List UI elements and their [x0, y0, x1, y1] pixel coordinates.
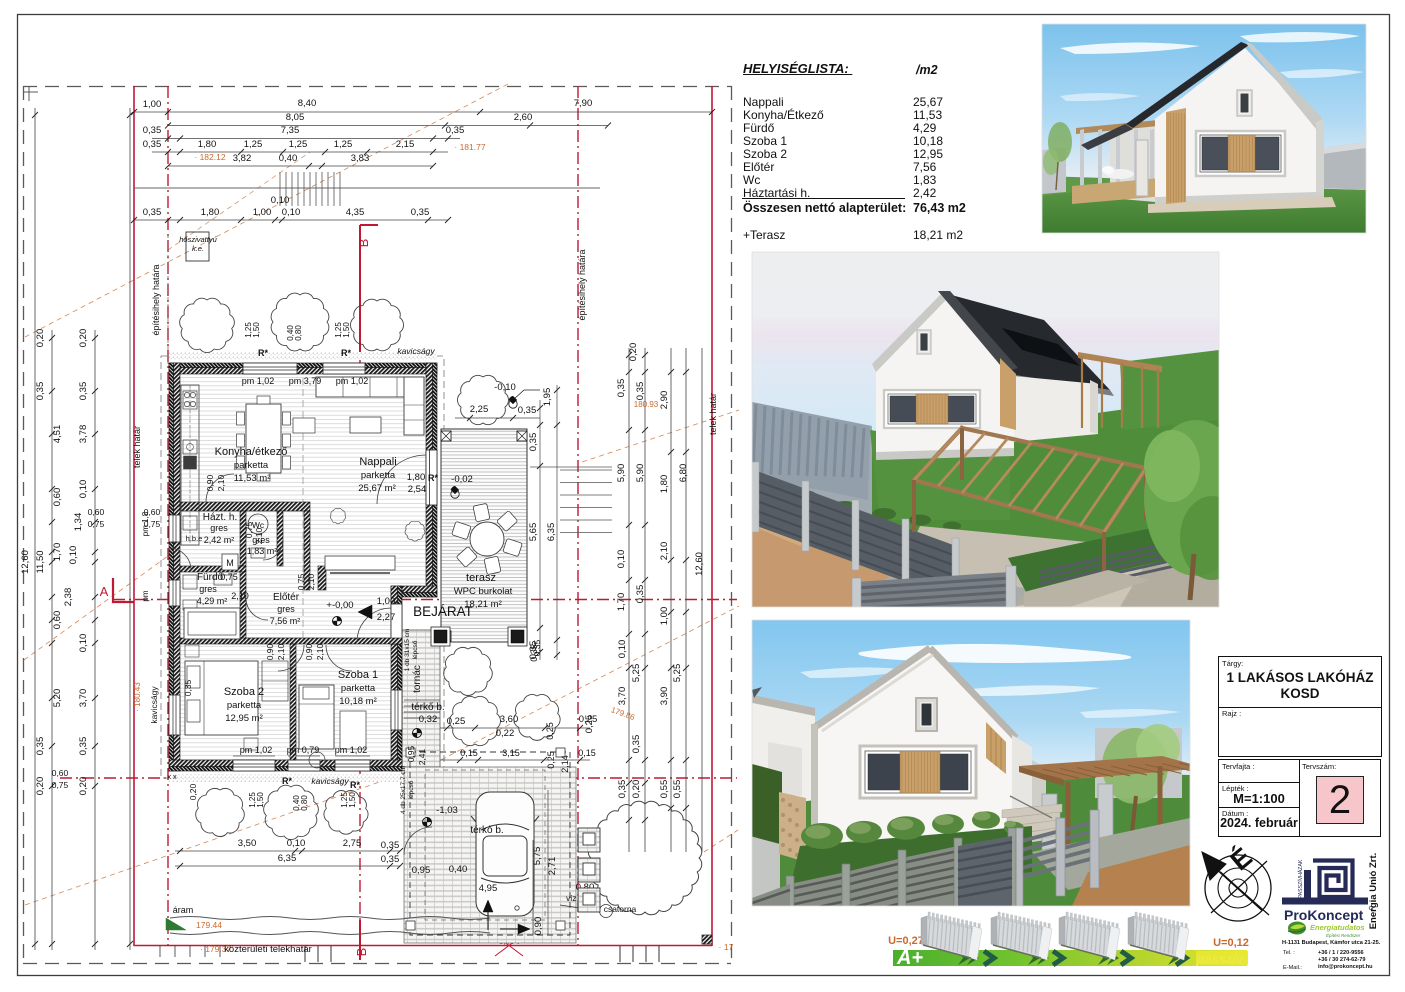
svg-text:0,35: 0,35: [381, 854, 400, 865]
svg-text:3,78: 3,78: [78, 425, 89, 444]
svg-text:2,42 m²: 2,42 m²: [204, 535, 235, 545]
svg-text:x x: x x: [167, 772, 177, 781]
svg-text:1,25: 1,25: [244, 139, 263, 150]
svg-text:1,00: 1,00: [659, 607, 670, 626]
svg-text:1,83 m²: 1,83 m²: [247, 546, 278, 556]
svg-text:11,50: 11,50: [35, 550, 46, 573]
svg-text:5,65: 5,65: [528, 523, 539, 542]
svg-text:B: B: [354, 948, 369, 957]
svg-text:2,10: 2,10: [659, 542, 670, 561]
svg-text:parketta: parketta: [227, 700, 262, 711]
svg-text:2,10: 2,10: [216, 474, 226, 491]
svg-text:pm 1,02: pm 1,02: [336, 376, 369, 386]
svg-text:12,60: 12,60: [20, 550, 31, 574]
svg-text:2,14: 2,14: [560, 755, 570, 773]
svg-text:0,75: 0,75: [52, 780, 69, 790]
svg-text:3,90: 3,90: [659, 687, 670, 706]
svg-text:1,80: 1,80: [201, 207, 220, 218]
svg-text:1,95: 1,95: [542, 388, 553, 407]
svg-text:pm 0,79: pm 0,79: [287, 745, 320, 755]
svg-text:2,41: 2,41: [417, 748, 427, 765]
svg-text:3,60: 3,60: [500, 714, 519, 725]
svg-text:0,35: 0,35: [183, 679, 193, 696]
svg-text:8,40: 8,40: [298, 98, 317, 109]
svg-text:0,35: 0,35: [143, 125, 162, 136]
svg-text:180.93: 180.93: [634, 400, 659, 409]
svg-text:1,80: 1,80: [659, 475, 670, 494]
svg-text:telek határ: telek határ: [132, 426, 142, 468]
svg-text:1,80: 1,80: [198, 139, 217, 150]
svg-text:0,90: 0,90: [265, 643, 275, 660]
svg-text:1,25: 1,25: [334, 139, 353, 150]
svg-text:1,70: 1,70: [52, 543, 63, 562]
svg-text:0,25: 0,25: [579, 714, 598, 725]
svg-text:0,55: 0,55: [659, 780, 670, 799]
svg-text:0,15: 0,15: [578, 748, 596, 758]
svg-text:4,95: 4,95: [479, 883, 498, 894]
svg-text:0,25: 0,25: [545, 722, 555, 740]
svg-text:pm 1,02: pm 1,02: [335, 745, 368, 755]
svg-text:R*: R*: [350, 780, 360, 790]
svg-text:0,80: 0,80: [300, 795, 309, 811]
svg-text:18,21 m²: 18,21 m²: [464, 599, 502, 610]
svg-text:Szoba 2: Szoba 2: [224, 686, 264, 698]
svg-text:terasz: terasz: [466, 572, 496, 584]
svg-text:0,20: 0,20: [35, 777, 46, 796]
svg-text:0,90: 0,90: [205, 474, 215, 491]
svg-text:2,10: 2,10: [254, 527, 264, 544]
svg-text:0,35: 0,35: [635, 382, 646, 401]
svg-text:0,35: 0,35: [532, 639, 542, 656]
svg-text:+-0,00: +-0,00: [326, 600, 353, 611]
svg-text:2,27: 2,27: [377, 612, 396, 623]
svg-text:0,80: 0,80: [294, 325, 303, 341]
svg-text:0,20: 0,20: [628, 343, 639, 362]
svg-text:4,51: 4,51: [52, 425, 63, 444]
svg-text:2,38: 2,38: [63, 588, 74, 607]
svg-text:0,20: 0,20: [188, 783, 198, 800]
svg-text:1,50: 1,50: [342, 322, 351, 338]
svg-text:A+: A+: [896, 947, 923, 969]
svg-text:csatorna: csatorna: [604, 904, 637, 914]
svg-text:5,25: 5,25: [631, 664, 642, 683]
svg-text:· 17: · 17: [719, 942, 734, 952]
svg-text:1,25: 1,25: [289, 139, 308, 150]
svg-text:7,35: 7,35: [281, 125, 300, 136]
svg-text:0,40: 0,40: [449, 864, 468, 875]
svg-text:0,35: 0,35: [631, 735, 642, 754]
svg-text:parketta: parketta: [361, 470, 396, 481]
svg-text:pm 1,02: pm 1,02: [240, 745, 273, 755]
svg-text:telek határ: telek határ: [708, 393, 718, 435]
svg-text:0,60: 0,60: [88, 507, 105, 517]
svg-text:kavicságy: kavicságy: [149, 686, 159, 724]
svg-text:· 182.12: · 182.12: [194, 152, 225, 162]
svg-text:gres: gres: [199, 584, 217, 594]
svg-text:2,15: 2,15: [396, 139, 415, 150]
svg-text:5,90: 5,90: [635, 464, 646, 483]
svg-text:7,90: 7,90: [574, 98, 593, 109]
svg-text:2,90: 2,90: [659, 391, 670, 410]
svg-text:Házt. h.: Házt. h.: [203, 512, 237, 523]
svg-text:Konyha/étkező: Konyha/étkező: [215, 446, 288, 458]
svg-text:11,53 m²: 11,53 m²: [234, 473, 271, 484]
svg-text:0,35: 0,35: [528, 433, 539, 452]
svg-text:0,55: 0,55: [672, 780, 683, 799]
svg-text:tornác: tornác: [412, 665, 423, 693]
svg-text:építésihely határa: építésihely határa: [577, 249, 587, 320]
svg-text:Nappali: Nappali: [359, 456, 396, 468]
svg-text:térkő b.: térkő b.: [411, 702, 444, 713]
svg-text:0,35: 0,35: [143, 207, 162, 218]
svg-text:0,10: 0,10: [287, 838, 306, 849]
svg-text:2,10: 2,10: [306, 573, 316, 590]
svg-text:0,60: 0,60: [52, 611, 63, 630]
svg-text:3,82: 3,82: [233, 153, 252, 164]
svg-text:2,54: 2,54: [408, 484, 427, 495]
svg-text:A: A: [100, 584, 109, 599]
svg-text:2,10: 2,10: [231, 591, 249, 601]
svg-text:0,35: 0,35: [617, 780, 628, 799]
svg-text:5,75: 5,75: [532, 847, 543, 866]
svg-text:Előtér: Előtér: [273, 592, 300, 603]
svg-text:1,70: 1,70: [616, 593, 627, 612]
svg-text:0,35: 0,35: [411, 207, 430, 218]
svg-text:4,35: 4,35: [346, 207, 365, 218]
svg-text:0,10: 0,10: [617, 640, 628, 659]
svg-text:k.e.: k.e.: [192, 244, 204, 253]
svg-text:2,60: 2,60: [514, 112, 533, 123]
svg-text:3,70: 3,70: [617, 687, 628, 706]
svg-text:0,35: 0,35: [518, 405, 537, 416]
svg-text:0,10: 0,10: [68, 546, 79, 565]
svg-text:12,60: 12,60: [694, 552, 705, 576]
svg-text:0,35: 0,35: [381, 840, 400, 851]
svg-text:7,56 m²: 7,56 m²: [270, 616, 301, 626]
svg-text:2,75: 2,75: [343, 838, 362, 849]
svg-text:0,35: 0,35: [616, 379, 627, 398]
svg-text:0,90: 0,90: [533, 917, 544, 936]
svg-text:3,70: 3,70: [78, 689, 89, 708]
svg-text:0,15: 0,15: [460, 748, 478, 758]
svg-text:5,25: 5,25: [672, 664, 683, 683]
svg-text:2,71: 2,71: [547, 857, 558, 876]
svg-text:áram: áram: [173, 905, 194, 915]
svg-text:2,10: 2,10: [315, 643, 325, 660]
svg-text:Energia Unió Zrt.: Energia Unió Zrt.: [1368, 853, 1379, 930]
svg-text:Építési Rendszer: Építési Rendszer: [1326, 932, 1361, 938]
svg-text:6,80: 6,80: [678, 464, 689, 483]
svg-text:0,60: 0,60: [52, 488, 63, 507]
svg-text:1,00: 1,00: [143, 99, 162, 110]
svg-text:1,80: 1,80: [407, 472, 426, 483]
svg-text:1,50: 1,50: [256, 792, 265, 808]
svg-text:0,22: 0,22: [496, 728, 515, 739]
svg-text:0,60: 0,60: [144, 507, 161, 517]
svg-text:0,75: 0,75: [244, 521, 254, 538]
svg-text:0,20: 0,20: [35, 329, 46, 348]
svg-text:R*: R*: [341, 348, 351, 358]
svg-text:R*: R*: [282, 776, 292, 786]
svg-text:B: B: [356, 239, 371, 248]
svg-text:0,20: 0,20: [78, 777, 89, 796]
svg-text:h.b.e: h.b.e: [186, 534, 203, 543]
svg-text:U=0,12: U=0,12: [1213, 937, 1249, 949]
svg-text:0,35: 0,35: [78, 737, 89, 756]
svg-text:lépcső: lépcső: [408, 780, 415, 799]
svg-text:179.44: 179.44: [196, 920, 222, 930]
svg-text:R*: R*: [258, 348, 268, 358]
svg-text:0,10: 0,10: [271, 195, 290, 206]
svg-text:0,35: 0,35: [35, 737, 46, 756]
svg-text:1,00: 1,00: [253, 207, 272, 218]
svg-text:közterületi telekhatár: közterületi telekhatár: [224, 944, 312, 955]
svg-text:kavicságy: kavicságy: [311, 776, 349, 786]
svg-text:Energiatudatos: Energiatudatos: [1310, 923, 1365, 932]
svg-text:pm 3,79: pm 3,79: [289, 376, 322, 386]
svg-text:0,90: 0,90: [304, 643, 314, 660]
svg-text:Szoba 1: Szoba 1: [338, 669, 378, 681]
svg-text:1,00: 1,00: [377, 596, 396, 607]
svg-text:0,20: 0,20: [631, 780, 642, 799]
svg-text:25,67 m²: 25,67 m²: [358, 483, 396, 494]
svg-text:M: M: [226, 558, 234, 568]
svg-text:0,10: 0,10: [282, 207, 301, 218]
svg-text:0,35: 0,35: [35, 382, 46, 401]
svg-text:0,75: 0,75: [144, 519, 161, 529]
svg-text:1,50: 1,50: [348, 792, 357, 808]
svg-text:5,90: 5,90: [616, 464, 627, 483]
svg-text:-0,02: -0,02: [451, 474, 473, 485]
svg-text:1 db 31x15 cm: 1 db 31x15 cm: [404, 629, 411, 672]
svg-text:0,75: 0,75: [220, 572, 238, 582]
svg-text:0,32: 0,32: [419, 714, 438, 725]
svg-text:4 db 25x17,7 cm: 4 db 25x17,7 cm: [400, 766, 407, 814]
svg-text:0,75: 0,75: [296, 573, 306, 590]
svg-text:gres: gres: [210, 523, 228, 533]
svg-text:térkő b.: térkő b.: [470, 825, 503, 836]
svg-text:pm: pm: [141, 590, 150, 601]
svg-text:8,05: 8,05: [286, 112, 305, 123]
svg-text:0,95: 0,95: [406, 745, 416, 762]
svg-text:WPC burkolat: WPC burkolat: [454, 586, 513, 597]
svg-text:6,35: 6,35: [546, 523, 557, 542]
svg-text:1,50: 1,50: [252, 322, 261, 338]
svg-text:építésihely határa: építésihely határa: [151, 264, 161, 335]
svg-text:5,20: 5,20: [52, 689, 63, 708]
svg-text:R*: R*: [428, 473, 438, 483]
svg-text:0,35: 0,35: [78, 382, 89, 401]
svg-text:kavicságy: kavicságy: [397, 346, 435, 356]
svg-text:6,35: 6,35: [278, 853, 297, 864]
svg-text:gres: gres: [277, 604, 295, 614]
svg-text:0,35: 0,35: [635, 585, 646, 604]
svg-text:· 180.43: · 180.43: [133, 682, 142, 712]
svg-text:3,50: 3,50: [238, 838, 257, 849]
svg-text:· 181.77: · 181.77: [454, 142, 485, 152]
svg-text:0,10: 0,10: [616, 550, 627, 569]
svg-text:0,95: 0,95: [412, 865, 431, 876]
svg-text:lépcső: lépcső: [412, 640, 419, 659]
svg-text:0,60: 0,60: [52, 768, 69, 778]
svg-text:0,35: 0,35: [446, 125, 465, 136]
svg-text:ProKoncept: ProKoncept: [1284, 907, 1364, 923]
svg-text:U=0,27: U=0,27: [888, 935, 924, 947]
svg-text:2,25: 2,25: [470, 404, 489, 415]
svg-text:hőszivattyú: hőszivattyú: [179, 235, 217, 244]
svg-text:1,34: 1,34: [73, 513, 84, 532]
svg-text:0,40: 0,40: [279, 153, 298, 164]
svg-text:3,15: 3,15: [502, 748, 520, 758]
svg-text:0,10: 0,10: [78, 634, 89, 653]
svg-text:0,20: 0,20: [78, 329, 89, 348]
svg-text:3,83: 3,83: [351, 153, 370, 164]
svg-text:4,29 m²: 4,29 m²: [197, 596, 228, 606]
svg-text:10,18 m²: 10,18 m²: [339, 696, 377, 707]
svg-text:0,35: 0,35: [143, 139, 162, 150]
svg-text:0,10: 0,10: [78, 480, 89, 499]
svg-text:PASSZÍVHÁZAK: PASSZÍVHÁZAK: [1297, 859, 1304, 898]
svg-text:12,95 m²: 12,95 m²: [225, 713, 263, 724]
svg-text:-0,10: -0,10: [494, 382, 516, 393]
svg-text:-1,03: -1,03: [436, 805, 458, 816]
svg-text:pm 1,02: pm 1,02: [242, 376, 275, 386]
svg-text:2,10: 2,10: [276, 643, 286, 660]
svg-text:parketta: parketta: [341, 683, 376, 694]
svg-text:0,75: 0,75: [88, 519, 105, 529]
svg-text:parketta: parketta: [234, 460, 269, 471]
